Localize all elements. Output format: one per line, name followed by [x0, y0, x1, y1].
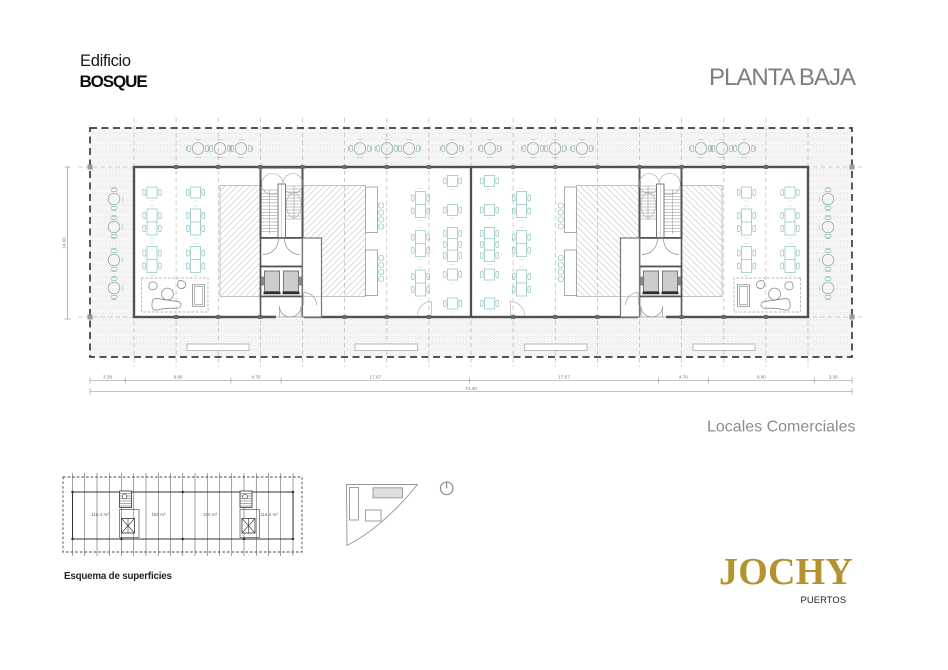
svg-text:Edificio: Edificio [80, 52, 131, 70]
svg-text:150 m²: 150 m² [203, 512, 218, 517]
svg-text:3.30: 3.30 [829, 375, 838, 380]
svg-text:116.4 m²: 116.4 m² [91, 512, 109, 517]
svg-text:71.40: 71.40 [465, 386, 477, 391]
svg-text:116.4 m²: 116.4 m² [260, 512, 278, 517]
svg-text:17.67: 17.67 [370, 375, 382, 380]
svg-text:JOCHY: JOCHY [719, 551, 853, 593]
svg-text:14.00: 14.00 [62, 237, 67, 249]
svg-text:4.70: 4.70 [679, 375, 688, 380]
svg-text:150 m²: 150 m² [151, 512, 166, 517]
svg-text:BOSQUE: BOSQUE [80, 72, 148, 91]
svg-text:4.70: 4.70 [252, 375, 261, 380]
svg-text:Esquema de superficies: Esquema de superficies [64, 571, 173, 582]
svg-text:PLANTA BAJA: PLANTA BAJA [709, 64, 856, 91]
svg-text:PUERTOS: PUERTOS [801, 594, 847, 605]
svg-text:9.90: 9.90 [757, 375, 766, 380]
svg-text:3.30: 3.30 [103, 375, 112, 380]
svg-text:9.90: 9.90 [174, 375, 183, 380]
svg-text:Locales Comerciales: Locales Comerciales [707, 419, 856, 436]
svg-text:17.67: 17.67 [558, 375, 570, 380]
